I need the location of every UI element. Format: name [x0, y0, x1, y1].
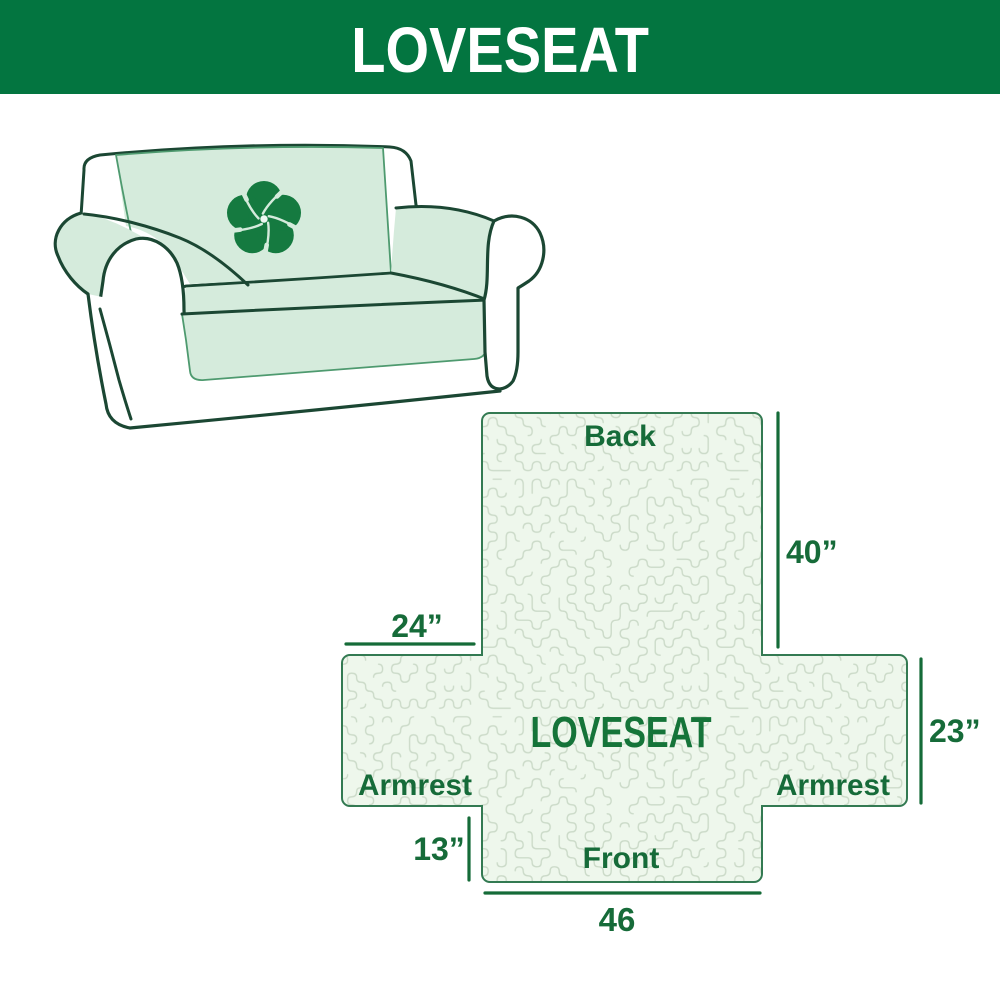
- svg-text:23”: 23”: [929, 713, 981, 749]
- svg-text:24”: 24”: [391, 608, 443, 644]
- svg-text:Armrest: Armrest: [358, 769, 472, 802]
- svg-text:LOVESEAT: LOVESEAT: [531, 708, 712, 757]
- svg-text:Back: Back: [584, 420, 656, 453]
- svg-text:13”: 13”: [413, 831, 465, 867]
- svg-text:46: 46: [599, 901, 636, 938]
- svg-text:Front: Front: [583, 842, 660, 875]
- svg-text:40”: 40”: [786, 534, 838, 570]
- svg-text:Armrest: Armrest: [776, 769, 890, 802]
